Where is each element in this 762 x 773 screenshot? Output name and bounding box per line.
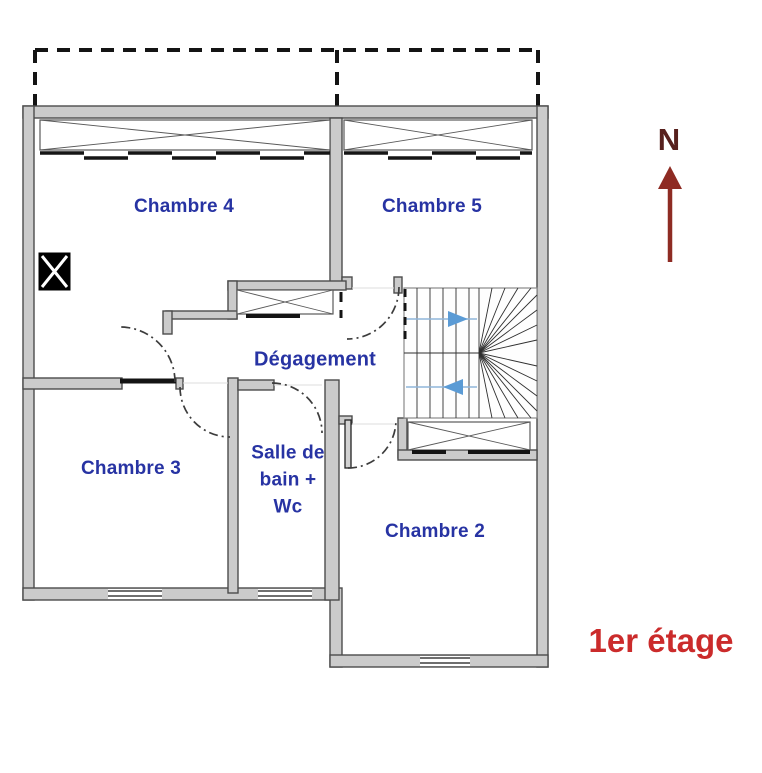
window-symbol-chambre4 (40, 120, 330, 158)
door-arc-chambre2 (348, 420, 396, 468)
closet-symbol-hallway (237, 290, 333, 316)
window-symbol-chambre2-south (420, 656, 470, 666)
north-arrow-icon (658, 166, 682, 262)
room-label-chambre2: Chambre 2 (385, 521, 485, 543)
window-symbol-chambre5 (344, 120, 532, 158)
door-arc-chambre4 (120, 327, 175, 382)
room-label-chambre5: Chambre 5 (382, 196, 482, 218)
door-arc-chambre5 (347, 287, 399, 339)
floor-plan: Chambre 4 Chambre 5 Dégagement Chambre 3… (0, 0, 762, 773)
room-label-chambre3: Chambre 3 (81, 458, 181, 480)
compass-north-letter: N (658, 122, 680, 158)
room-label-degagement: Dégagement (254, 349, 376, 372)
room-label-bathroom-line3: Wc (228, 494, 348, 521)
room-label-bathroom-line2: bain + (228, 467, 348, 494)
room-label-chambre4: Chambre 4 (134, 196, 234, 218)
room-label-bathroom-line1: Salle de (228, 440, 348, 467)
footprint-dashed-outline (35, 50, 538, 318)
door-arc-bathroom (272, 383, 322, 433)
window-symbol-chambre3-south (108, 589, 162, 599)
chimney-symbol (39, 253, 70, 290)
room-label-bathroom: Salle de bain + Wc (228, 440, 348, 521)
door-arc-chambre3 (180, 387, 230, 437)
closet-symbol-stairs (408, 422, 530, 452)
staircase (404, 288, 537, 418)
window-symbol-bathroom-south (258, 589, 312, 599)
floor-title: 1er étage (589, 622, 734, 660)
